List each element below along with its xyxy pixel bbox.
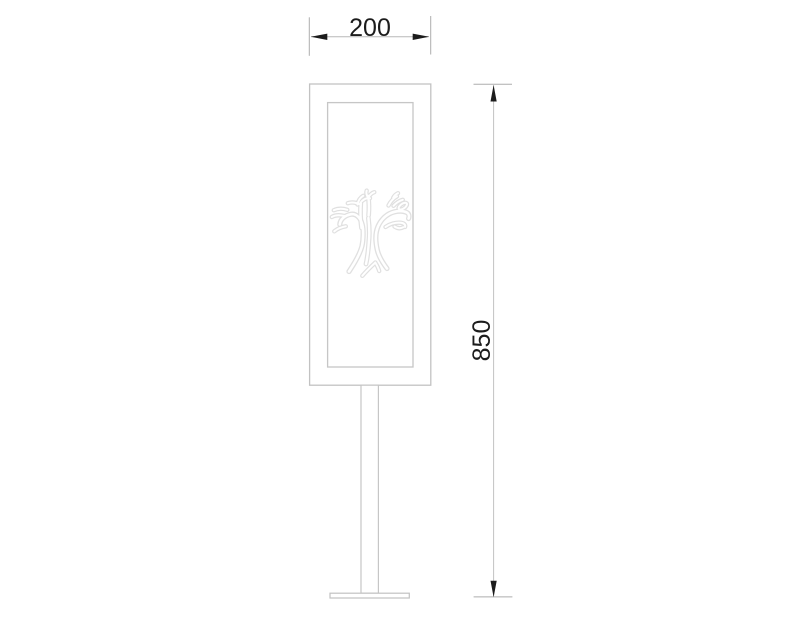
svg-text:850: 850: [468, 320, 496, 362]
svg-text:200: 200: [349, 14, 391, 42]
